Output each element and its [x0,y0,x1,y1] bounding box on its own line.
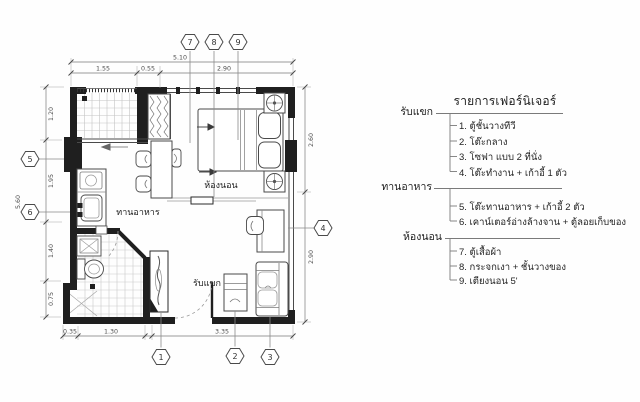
dim-right-1: 2.60 [308,133,315,147]
tv-cabinet [150,251,168,312]
svg-text:7: 7 [187,38,192,47]
toilet-tank [77,259,85,279]
svg-text:6: 6 [27,208,32,217]
kitchen-counter [77,169,107,234]
svg-text:8: 8 [211,38,216,47]
group-divider [436,113,563,114]
sliding-door-arrow [102,144,128,150]
furniture-item-1: 1. ตู้ชั้นวางทีวี [459,119,516,134]
marker-9: 9 [229,35,247,50]
coffee-table [224,274,247,311]
bathroom-fixtures [77,236,104,289]
list-tree-lines [450,113,457,280]
bedside-table [264,93,285,113]
svg-text:2: 2 [232,352,237,361]
group-divider [434,188,562,189]
living-label: รับแขก [193,279,221,289]
furniture-item-6: 6. เคาน์เตอร์อ่างล้างจาน + ตู้ลอยเก็บของ [459,215,626,230]
group-label-dining: ทานอาหาร [355,178,432,195]
dim-left-3: 1.40 [48,244,55,258]
dining-chair [136,176,151,192]
room-labels: ห้องนอน ทานอาหาร รับแขก [116,180,237,289]
svg-text:5: 5 [27,155,32,164]
bathroom-door [107,231,145,258]
furniture-item-9: 9. เตียงนอน 5' [459,274,518,289]
svg-text:1: 1 [158,353,163,362]
bedroom-label: ห้องนอน [204,180,237,191]
dim-left-total: 5.60 [15,195,22,209]
group-divider [445,238,560,239]
dining-chair [136,151,151,167]
marker-7: 7 [181,35,199,50]
work-desk [247,210,285,252]
furniture-item-7: 7. ตู้เสื้อผ้า [459,245,501,260]
furniture-list-title: รายการเฟอร์นิเจอร์ [445,92,565,111]
dim-left-1: 1.20 [48,107,55,121]
furniture-item-4: 4. โต๊ะทำงาน + เก้าอี้ 1 ตัว [459,166,567,181]
marker-5: 5 [21,152,39,167]
dining-table [136,141,181,198]
dim-left-4: 0.75 [48,292,55,306]
dim-bottom-1: 0.35 [63,329,77,336]
mirror-shelf [191,197,213,204]
furniture-item-3: 3. โซฟา แบบ 2 ที่นั่ง [459,150,542,165]
dim-bottom-2: 1.30 [104,329,118,336]
furniture-item-8: 8. กระจกเงา + ชั้นวางของ [459,260,566,275]
dim-top-2: 0.55 [141,66,155,73]
group-label-bedroom: ห้องนอน [372,228,442,245]
dim-right-2: 2.90 [308,250,315,264]
dim-top-3: 2.90 [217,66,231,73]
bed [198,109,283,171]
dim-bottom-3: 3.35 [215,329,229,336]
svg-text:3: 3 [267,353,272,362]
balcony-floor-drain [82,96,87,101]
dining-label: ทานอาหาร [116,208,160,218]
toilet-bowl [85,260,104,278]
dim-top-1: 1.55 [96,66,110,73]
furniture-item-2: 2. โต๊ะกลาง [459,135,507,150]
bedside-table [264,171,285,192]
marker-1: 1 [152,350,170,365]
dim-top-total: 5.10 [173,55,187,62]
floor-plan-sheet: 5.10 1.55 0.55 2.90 1.20 1.95 1.40 0.75 … [0,0,640,402]
sofa [256,262,288,316]
marker-8: 8 [205,35,223,50]
dim-left-2: 1.95 [48,174,55,188]
balcony-railing [77,89,137,91]
marker-3: 3 [261,350,279,365]
group-label-living: รับแขก [363,103,433,120]
marker-4: 4 [314,221,332,236]
desk-chair [247,217,264,235]
svg-text:4: 4 [320,224,325,233]
furniture-item-5: 5. โต๊ะทานอาหาร + เก้าอี้ 2 ตัว [459,200,585,215]
marker-6: 6 [21,205,39,220]
pillow [259,142,281,168]
shower-area-hatch [66,291,97,316]
marker-2: 2 [226,349,244,364]
svg-text:9: 9 [235,38,240,47]
wardrobe [148,94,171,139]
pillow [259,113,281,139]
